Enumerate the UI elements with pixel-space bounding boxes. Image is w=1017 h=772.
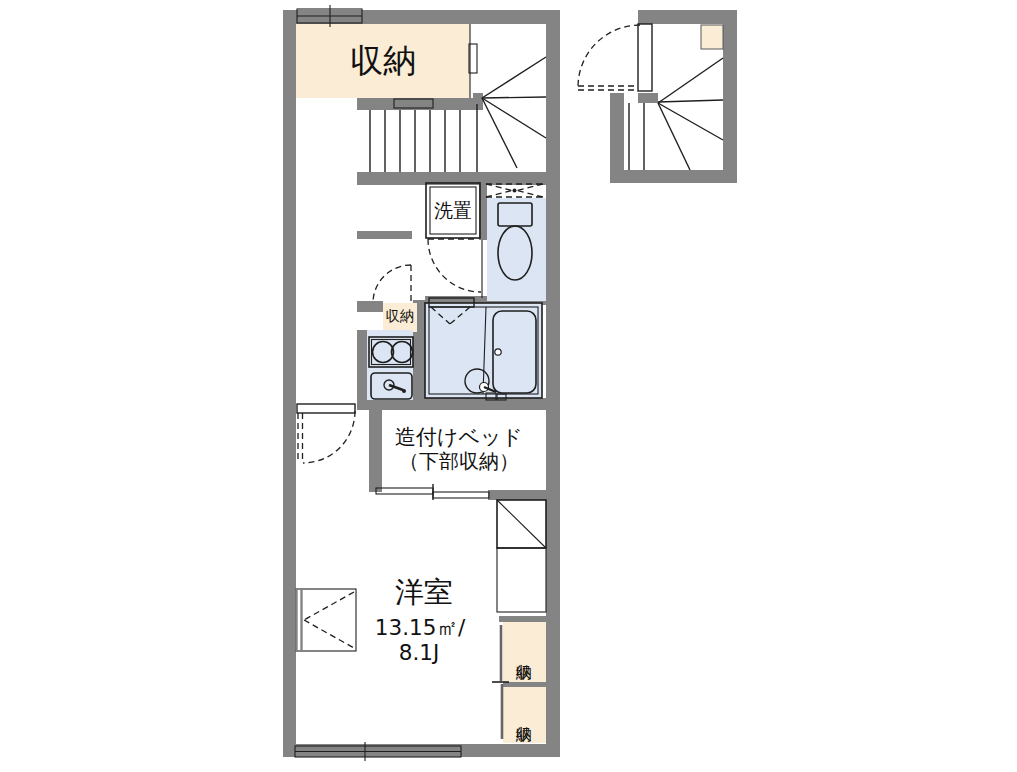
label-room-name: 洋室 bbox=[395, 577, 453, 608]
label-closet-hall: 収納 bbox=[386, 309, 415, 325]
label-laundry-space: 洗置 bbox=[434, 200, 472, 221]
label-closet-right-lower: 収納 bbox=[515, 713, 532, 715]
hall-closet-door bbox=[373, 265, 411, 303]
label-room-area-sqm: 13.15㎡/ bbox=[375, 616, 465, 639]
entrance-staircase bbox=[578, 10, 737, 183]
label-closet-top: 収納 bbox=[350, 43, 416, 79]
floorplan-drawing bbox=[0, 0, 1017, 772]
bed-sliding-door bbox=[376, 484, 489, 500]
louver-window-icon bbox=[486, 184, 543, 197]
room-door bbox=[297, 404, 355, 463]
floorplan-canvas: 収納 洗置 収納 造付けベッド （下部収納） 洋室 13.15㎡/ 8.1J 収… bbox=[0, 0, 1017, 772]
label-room-area-tatami: 8.1J bbox=[399, 641, 440, 664]
label-built-in-bed-sub: （下部収納） bbox=[399, 451, 519, 473]
label-built-in-bed: 造付けベッド bbox=[395, 426, 523, 449]
washroom-door bbox=[428, 239, 482, 298]
label-closet-right-upper: 収納 bbox=[515, 651, 532, 653]
